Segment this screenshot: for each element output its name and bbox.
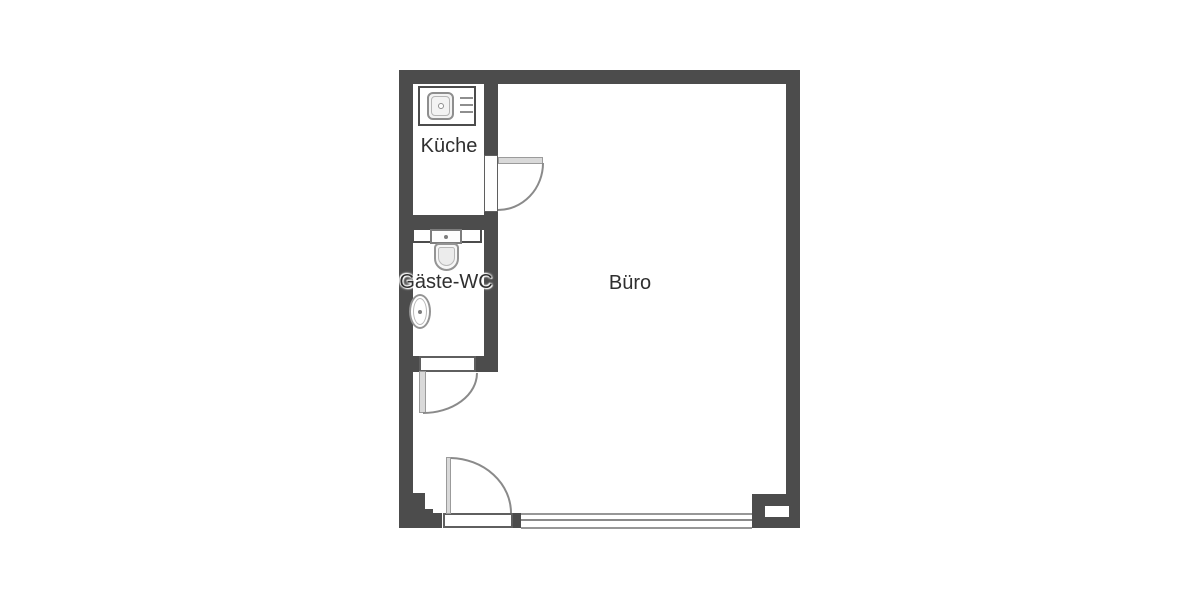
room-label-kueche: Küche <box>399 135 499 157</box>
wall-top <box>399 70 800 84</box>
wc-door-swing-icon <box>423 373 477 413</box>
entrance-door-threshold <box>443 513 513 528</box>
window-mullion-line <box>521 519 752 521</box>
wall-wc-bottom-right <box>476 356 498 372</box>
wall-right <box>786 70 800 528</box>
wall-wc-right <box>484 230 498 372</box>
wc-door-opening <box>419 356 476 372</box>
floor-plan: Küche Gäste-WC Büro <box>0 0 1200 600</box>
window-glazing-icon <box>521 513 752 529</box>
room-label-buero: Büro <box>580 272 680 294</box>
entrance-door-leaf <box>446 457 451 514</box>
kitchen-door-opening <box>484 155 498 212</box>
wall-window-post <box>513 513 521 528</box>
room-gaeste-wc <box>413 230 484 356</box>
room-label-gaeste-wc: Gäste-WC <box>394 271 498 293</box>
wc-door-leaf <box>419 371 426 413</box>
wall-bottom-left-base <box>399 513 442 528</box>
room-buero <box>498 84 786 513</box>
